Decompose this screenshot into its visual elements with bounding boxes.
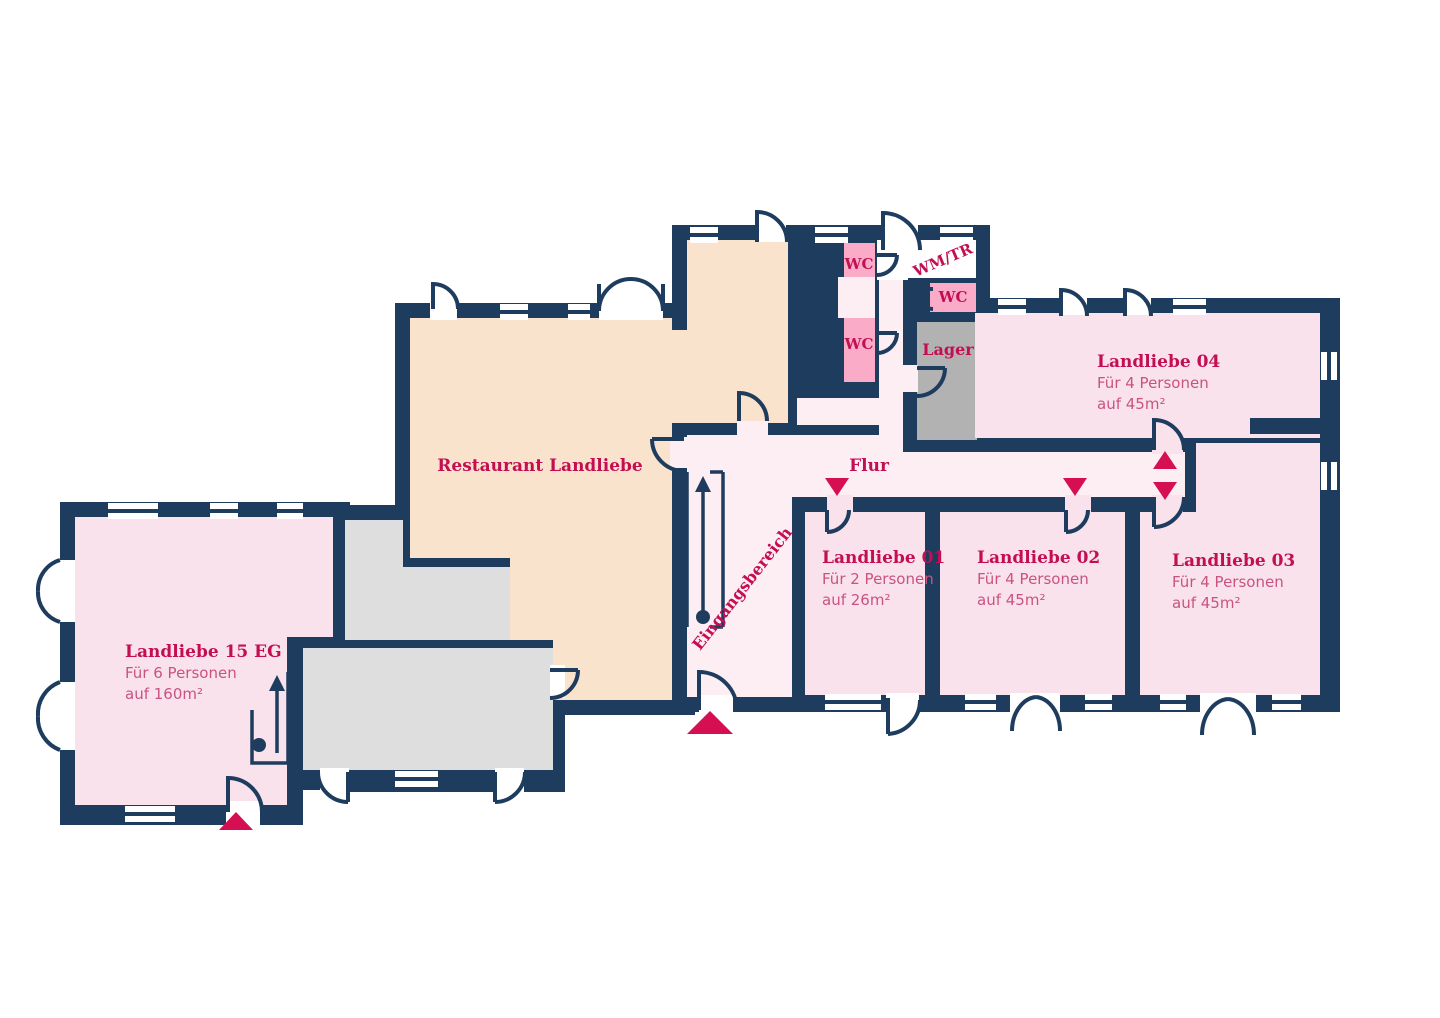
hall-flur-east bbox=[883, 452, 1185, 497]
door-opening bbox=[1200, 693, 1256, 712]
door-opening bbox=[1059, 298, 1087, 315]
label-landliebe-03: Landliebe 03 Für 4 Personen auf 45m² bbox=[1172, 551, 1295, 614]
room-area: auf 45m² bbox=[977, 590, 1100, 611]
label-lager: Lager bbox=[910, 339, 986, 360]
wall-step-room04 bbox=[1250, 418, 1320, 434]
room-landliebe-03-n bbox=[1196, 443, 1320, 513]
room-title: Landliebe 03 bbox=[1172, 551, 1295, 571]
door-opening bbox=[827, 495, 853, 513]
room-restaurant-annex bbox=[687, 240, 788, 423]
vestibule bbox=[877, 240, 908, 280]
window bbox=[210, 503, 238, 519]
door-opening bbox=[1065, 495, 1091, 513]
room-area: auf 45m² bbox=[1172, 593, 1295, 614]
room-area: auf 45m² bbox=[1097, 394, 1220, 415]
door-opening bbox=[699, 695, 733, 714]
room-area: auf 160m² bbox=[125, 684, 282, 705]
door-opening bbox=[226, 801, 260, 827]
window bbox=[1173, 299, 1206, 315]
label-wc-3: WC bbox=[930, 287, 976, 308]
room-area: auf 26m² bbox=[822, 590, 945, 611]
room-restaurant-s1 bbox=[510, 558, 672, 640]
door-opening bbox=[1010, 693, 1060, 712]
window bbox=[690, 227, 718, 243]
hall-between-wc bbox=[838, 277, 875, 318]
room-title: Lager bbox=[922, 340, 973, 359]
label-landliebe-04: Landliebe 04 Für 4 Personen auf 45m² bbox=[1097, 352, 1220, 415]
door-opening bbox=[737, 421, 768, 437]
window bbox=[277, 503, 303, 519]
label-landliebe-15: Landliebe 15 EG Für 6 Personen auf 160m² bbox=[125, 642, 282, 705]
door-opening bbox=[56, 682, 75, 750]
room-utility-b bbox=[345, 567, 510, 640]
window bbox=[1321, 352, 1337, 380]
room-restaurant-s2 bbox=[553, 640, 672, 700]
room-title: Flur bbox=[849, 456, 889, 476]
floor-plan: Restaurant Landliebe Landliebe 15 EG Für… bbox=[0, 0, 1440, 1018]
window bbox=[1272, 694, 1301, 710]
window bbox=[965, 694, 996, 710]
room-capacity: Für 4 Personen bbox=[977, 569, 1100, 590]
room-title: Landliebe 02 bbox=[977, 548, 1100, 568]
window bbox=[825, 694, 881, 710]
hall-corridor-bend bbox=[797, 398, 880, 425]
window bbox=[125, 806, 175, 822]
room-title: WC bbox=[845, 255, 874, 273]
label-restaurant: Restaurant Landliebe bbox=[420, 456, 660, 477]
door-opening bbox=[320, 768, 349, 792]
room-title: Landliebe 01 bbox=[822, 548, 945, 568]
window bbox=[1321, 462, 1337, 490]
window bbox=[998, 299, 1026, 315]
room-restaurant bbox=[410, 318, 672, 558]
door-opening bbox=[886, 693, 919, 712]
window bbox=[500, 304, 528, 320]
room-title: WC bbox=[939, 288, 968, 306]
outside-notch bbox=[303, 790, 350, 825]
label-flur: Flur bbox=[834, 456, 904, 477]
door-opening bbox=[430, 303, 457, 320]
door-opening bbox=[56, 560, 75, 622]
room-landliebe-15-a bbox=[75, 517, 333, 637]
entrance-area bbox=[687, 435, 792, 697]
window bbox=[108, 503, 158, 519]
door-opening bbox=[550, 665, 565, 698]
window bbox=[568, 304, 590, 320]
room-capacity: Für 4 Personen bbox=[1097, 373, 1220, 394]
room-capacity: Für 4 Personen bbox=[1172, 572, 1295, 593]
door-opening bbox=[670, 437, 689, 468]
window bbox=[1085, 694, 1112, 710]
label-wc-1: WC bbox=[841, 254, 877, 275]
window bbox=[395, 771, 438, 787]
room-utility-a bbox=[345, 520, 403, 567]
door-opening bbox=[599, 303, 663, 320]
label-landliebe-02: Landliebe 02 Für 4 Personen auf 45m² bbox=[977, 548, 1100, 611]
door-opening bbox=[1152, 436, 1183, 454]
window bbox=[815, 227, 848, 243]
room-capacity: Für 6 Personen bbox=[125, 663, 282, 684]
label-landliebe-01: Landliebe 01 Für 2 Personen auf 26m² bbox=[822, 548, 945, 611]
room-title: Landliebe 04 bbox=[1097, 352, 1220, 372]
door-opening bbox=[883, 225, 918, 242]
room-utility-c bbox=[303, 648, 553, 770]
door-opening bbox=[1123, 298, 1151, 315]
door-opening bbox=[1152, 495, 1183, 513]
door-opening bbox=[903, 365, 918, 392]
room-title: Restaurant Landliebe bbox=[437, 456, 643, 476]
room-capacity: Für 2 Personen bbox=[822, 569, 945, 590]
label-wc-2: WC bbox=[841, 334, 877, 355]
door-opening bbox=[755, 225, 786, 242]
room-title: Landliebe 15 EG bbox=[125, 642, 282, 662]
room-title: WC bbox=[845, 335, 874, 353]
door-opening bbox=[495, 768, 524, 792]
window bbox=[1160, 694, 1186, 710]
